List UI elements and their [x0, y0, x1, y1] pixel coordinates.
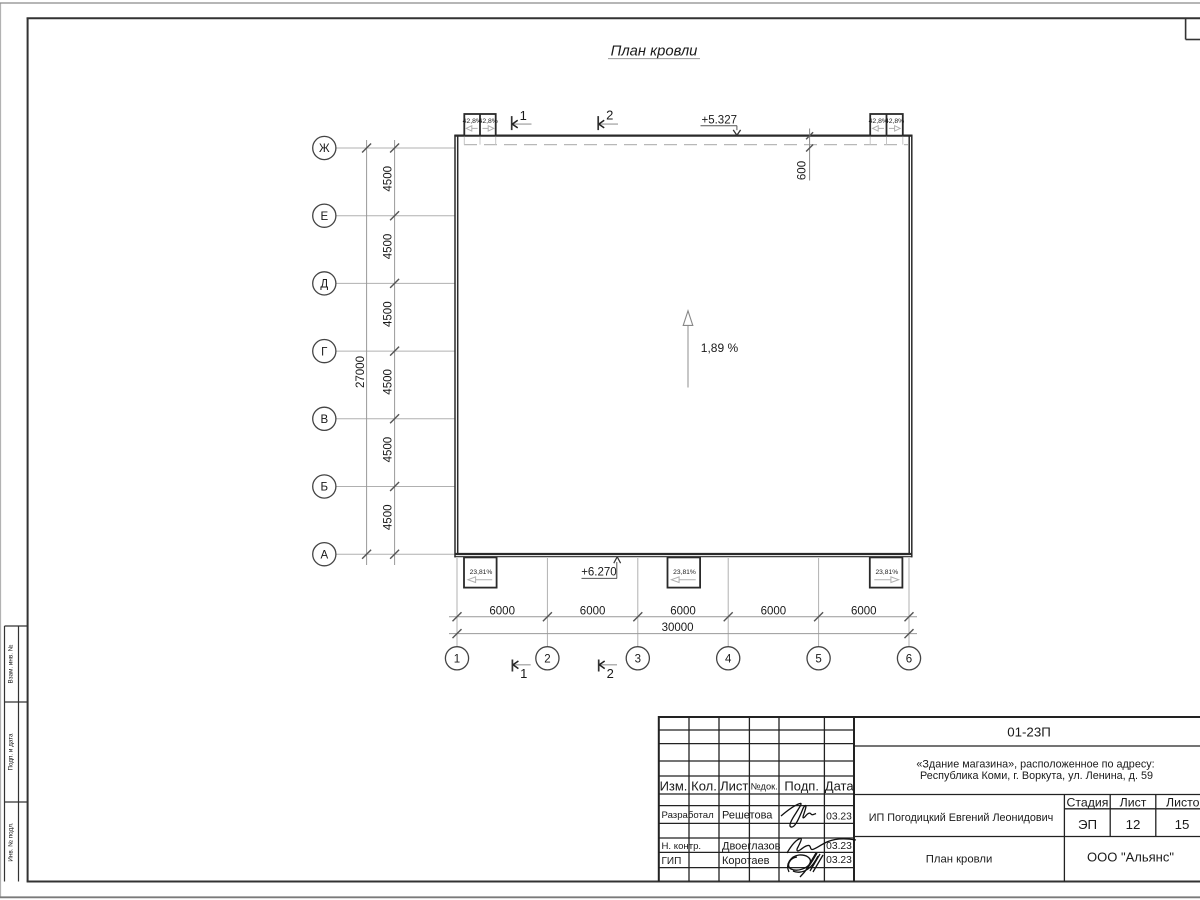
svg-text:ИП Погодицкий Евгений Леонидов: ИП Погодицкий Евгений Леонидович [869, 812, 1054, 824]
svg-text:Лист: Лист [720, 779, 748, 794]
svg-text:23,81%: 23,81% [875, 569, 898, 576]
svg-text:12: 12 [1126, 817, 1141, 832]
svg-text:03.23: 03.23 [826, 811, 852, 822]
svg-text:Подп.: Подп. [784, 779, 819, 794]
svg-text:2: 2 [607, 666, 614, 681]
svg-text:А: А [320, 549, 328, 561]
svg-text:В: В [320, 414, 328, 426]
svg-text:ЭП: ЭП [1078, 817, 1097, 832]
svg-text:23,81%: 23,81% [470, 569, 493, 576]
svg-text:6000: 6000 [580, 605, 606, 617]
svg-text:Разработал: Разработал [662, 810, 714, 821]
svg-text:Г: Г [321, 346, 328, 358]
svg-text:6000: 6000 [761, 605, 787, 617]
svg-text:План кровли: План кровли [926, 854, 993, 866]
svg-text:6000: 6000 [489, 605, 515, 617]
svg-text:1: 1 [520, 666, 527, 681]
svg-text:Лист: Лист [1120, 796, 1147, 810]
svg-text:4500: 4500 [383, 505, 395, 531]
svg-text:Республика Коми, г. Воркута, у: Республика Коми, г. Воркута, ул. Ленина,… [920, 770, 1153, 782]
svg-text:Ж: Ж [319, 143, 330, 155]
svg-text:Инв. № подл.: Инв. № подл. [8, 822, 15, 861]
svg-text:3: 3 [635, 654, 641, 666]
svg-text:Б: Б [321, 482, 329, 494]
svg-text:Коротаев: Коротаев [722, 855, 770, 867]
svg-text:23,81%: 23,81% [673, 569, 696, 576]
svg-text:4500: 4500 [383, 166, 395, 192]
svg-text:27000: 27000 [355, 356, 367, 388]
svg-text:Н. контр.: Н. контр. [662, 841, 702, 852]
svg-text:4: 4 [725, 654, 732, 666]
svg-text:Листов: Листов [1166, 796, 1200, 810]
svg-text:42,8%: 42,8% [885, 118, 904, 125]
svg-text:«Здание магазина», расположенн: «Здание магазина», расположенное по адре… [916, 759, 1154, 771]
svg-text:Кол.: Кол. [691, 779, 717, 794]
svg-text:6000: 6000 [851, 605, 877, 617]
svg-text:Изм.: Изм. [660, 779, 688, 794]
svg-text:План кровли: План кровли [611, 44, 698, 60]
svg-text:1,89 %: 1,89 % [701, 341, 739, 355]
svg-text:01-23П: 01-23П [1007, 725, 1051, 740]
svg-text:Д: Д [320, 279, 328, 291]
svg-text:1: 1 [454, 654, 460, 666]
svg-text:+6.270: +6.270 [581, 567, 617, 579]
svg-text:Е: Е [320, 211, 328, 223]
svg-text:03.23: 03.23 [826, 841, 852, 852]
svg-text:4500: 4500 [383, 301, 395, 327]
svg-text:Взам. инв. №: Взам. инв. № [8, 644, 15, 683]
svg-text:42,8%: 42,8% [479, 118, 498, 125]
svg-text:2: 2 [606, 107, 613, 122]
svg-text:ООО "Альянс": ООО "Альянс" [1087, 850, 1174, 865]
svg-text:№док.: №док. [751, 782, 778, 792]
svg-text:600: 600 [797, 161, 809, 180]
svg-text:03.23: 03.23 [826, 855, 852, 866]
svg-text:+5.327: +5.327 [702, 115, 738, 127]
svg-text:1: 1 [520, 108, 527, 123]
svg-text:4500: 4500 [383, 369, 395, 395]
svg-text:4500: 4500 [383, 234, 395, 260]
svg-text:5: 5 [815, 654, 821, 666]
svg-text:Дата: Дата [825, 779, 855, 794]
svg-text:2: 2 [544, 654, 550, 666]
svg-text:Подп. и дата: Подп. и дата [8, 733, 15, 771]
svg-text:6: 6 [906, 654, 912, 666]
svg-text:Решетова: Решетова [722, 810, 773, 822]
svg-text:6000: 6000 [670, 605, 696, 617]
svg-text:ГИП: ГИП [662, 856, 682, 867]
svg-text:15: 15 [1175, 817, 1190, 832]
svg-text:Стадия: Стадия [1067, 796, 1109, 810]
svg-text:Двоеглазов: Двоеглазов [722, 841, 781, 853]
svg-text:4500: 4500 [383, 437, 395, 463]
svg-text:30000: 30000 [662, 622, 694, 634]
